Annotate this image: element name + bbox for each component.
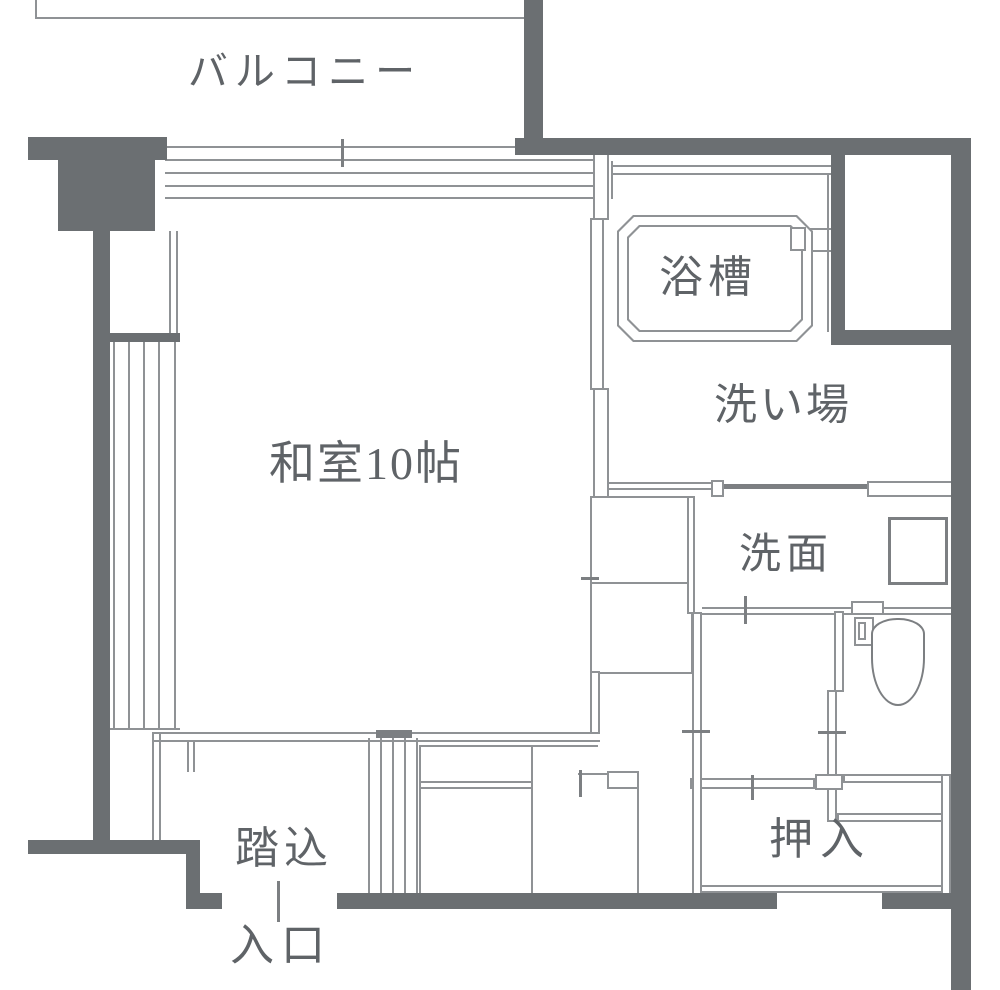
toilet-west-wall-lower [827, 690, 837, 822]
toilet-bowl [871, 618, 925, 706]
strip-divider-line [637, 789, 639, 893]
washstand-south-wall-b [702, 613, 852, 615]
upper-window-line-a [169, 231, 171, 335]
room-se-wall [590, 671, 600, 734]
upper-window-line-b [176, 231, 178, 335]
left-window-sill [110, 728, 180, 730]
storage-box-2 [590, 582, 693, 674]
room-south-wall-b [152, 740, 600, 742]
closet-bottom-line-a [698, 885, 946, 887]
washstand-south-wall-d [884, 613, 951, 615]
entry-door-line-4 [404, 738, 406, 894]
bathtub-label: 浴槽 [659, 256, 757, 300]
bath-top-finish-a [613, 165, 833, 167]
corridor-west-wall [692, 612, 702, 895]
bath-sliding-door-leaf [590, 218, 604, 390]
storage-b-top-line [578, 773, 608, 775]
washstand-west-wall [687, 496, 695, 614]
balcony-door-track-5 [165, 197, 593, 199]
balcony-grid-tick [341, 139, 344, 167]
bath-door-jamb [711, 480, 724, 497]
toilet-west-wall-upper [834, 611, 844, 692]
bath-east-finish [827, 175, 829, 332]
balcony-door-track-4 [165, 185, 593, 187]
washstand-grid-tick [744, 596, 747, 624]
toilet-flush-button [858, 622, 866, 640]
storage-b-grid-tick [579, 770, 582, 797]
entry-door-line-5 [416, 738, 418, 894]
south-outer-wall-east [882, 893, 971, 909]
entry-door-cap [376, 730, 412, 738]
entry-door-line-1 [368, 738, 370, 894]
storage-a-divider-b [419, 787, 533, 789]
storage-box-1 [590, 496, 693, 584]
washplace-label: 洗い場 [714, 385, 852, 428]
window-junction-cap [110, 333, 180, 342]
balcony-divider-wall [524, 0, 543, 141]
entry-west-line-a [152, 734, 154, 842]
washplace-south-wall-a [608, 482, 714, 484]
washstand-south-wall-a [702, 607, 852, 609]
west-outer-wall [93, 228, 110, 852]
entrance-grid-tick [277, 881, 280, 922]
floor-plan-canvas: バルコニー和室10帖浴槽洗い場洗面押入踏込入口 [0, 0, 1000, 990]
left-window-line-2 [128, 342, 130, 728]
entrance-side-wall [186, 893, 222, 909]
closet-east-wall [941, 774, 951, 895]
closet-grid-tick [751, 775, 754, 800]
left-window-line-3 [143, 342, 145, 728]
door-notch-a [187, 742, 189, 772]
left-window-line-5 [174, 342, 176, 728]
closet-label: 押入 [769, 818, 871, 862]
northwest-corner-block [58, 160, 155, 231]
entry-west-line-b [159, 734, 161, 842]
room-label: 和室10帖 [269, 441, 463, 487]
room-east-wall-upper [593, 150, 609, 220]
service-box-south-wall [831, 330, 971, 345]
balcony-door-track-1 [165, 146, 515, 148]
southwest-corner-bar [28, 840, 200, 854]
washstand-south-wall-c [884, 607, 951, 609]
east-outer-wall [951, 138, 971, 990]
balcony-label: バルコニー [188, 52, 422, 92]
storage-grid-tick [581, 577, 599, 580]
washstand-sink [888, 517, 948, 585]
left-window-line-4 [158, 342, 160, 728]
entry-step-label: 踏込 [235, 827, 333, 871]
storage-a-divider-a [419, 781, 533, 783]
balcony-door-track-3 [165, 172, 593, 174]
top-boundary-line [35, 17, 525, 19]
toilet-grid-tick [818, 731, 846, 734]
left-window-line-1 [113, 342, 115, 728]
door-notch-b [193, 742, 195, 772]
balcony-door-track-2 [165, 159, 593, 161]
washplace-south-wall-b [608, 488, 714, 490]
washroom-sliding-door [723, 484, 867, 489]
entry-door-line-2 [380, 738, 382, 894]
toilet-door-leaf [851, 601, 884, 615]
toilet-south-wall [843, 774, 951, 783]
service-box-west-wall [831, 152, 845, 345]
top-boundary-stub [35, 0, 37, 17]
south-outer-wall [337, 893, 777, 909]
entrance-label: 入口 [230, 924, 332, 968]
washroom-door-leaf [867, 481, 953, 497]
entry-door-line-3 [392, 738, 394, 894]
room-east-wall-lower [593, 388, 609, 498]
bath-top-finish-b [613, 173, 833, 175]
storage-a-box [419, 745, 533, 895]
closet-door-jamb [815, 774, 843, 790]
corridor-grid-tick [682, 730, 710, 733]
northwest-corner-bar [28, 137, 167, 160]
bath-faucet [790, 227, 806, 251]
bath-north-wall [515, 138, 971, 155]
storage-b-jamb [607, 771, 639, 789]
washstand-label: 洗面 [739, 534, 833, 576]
